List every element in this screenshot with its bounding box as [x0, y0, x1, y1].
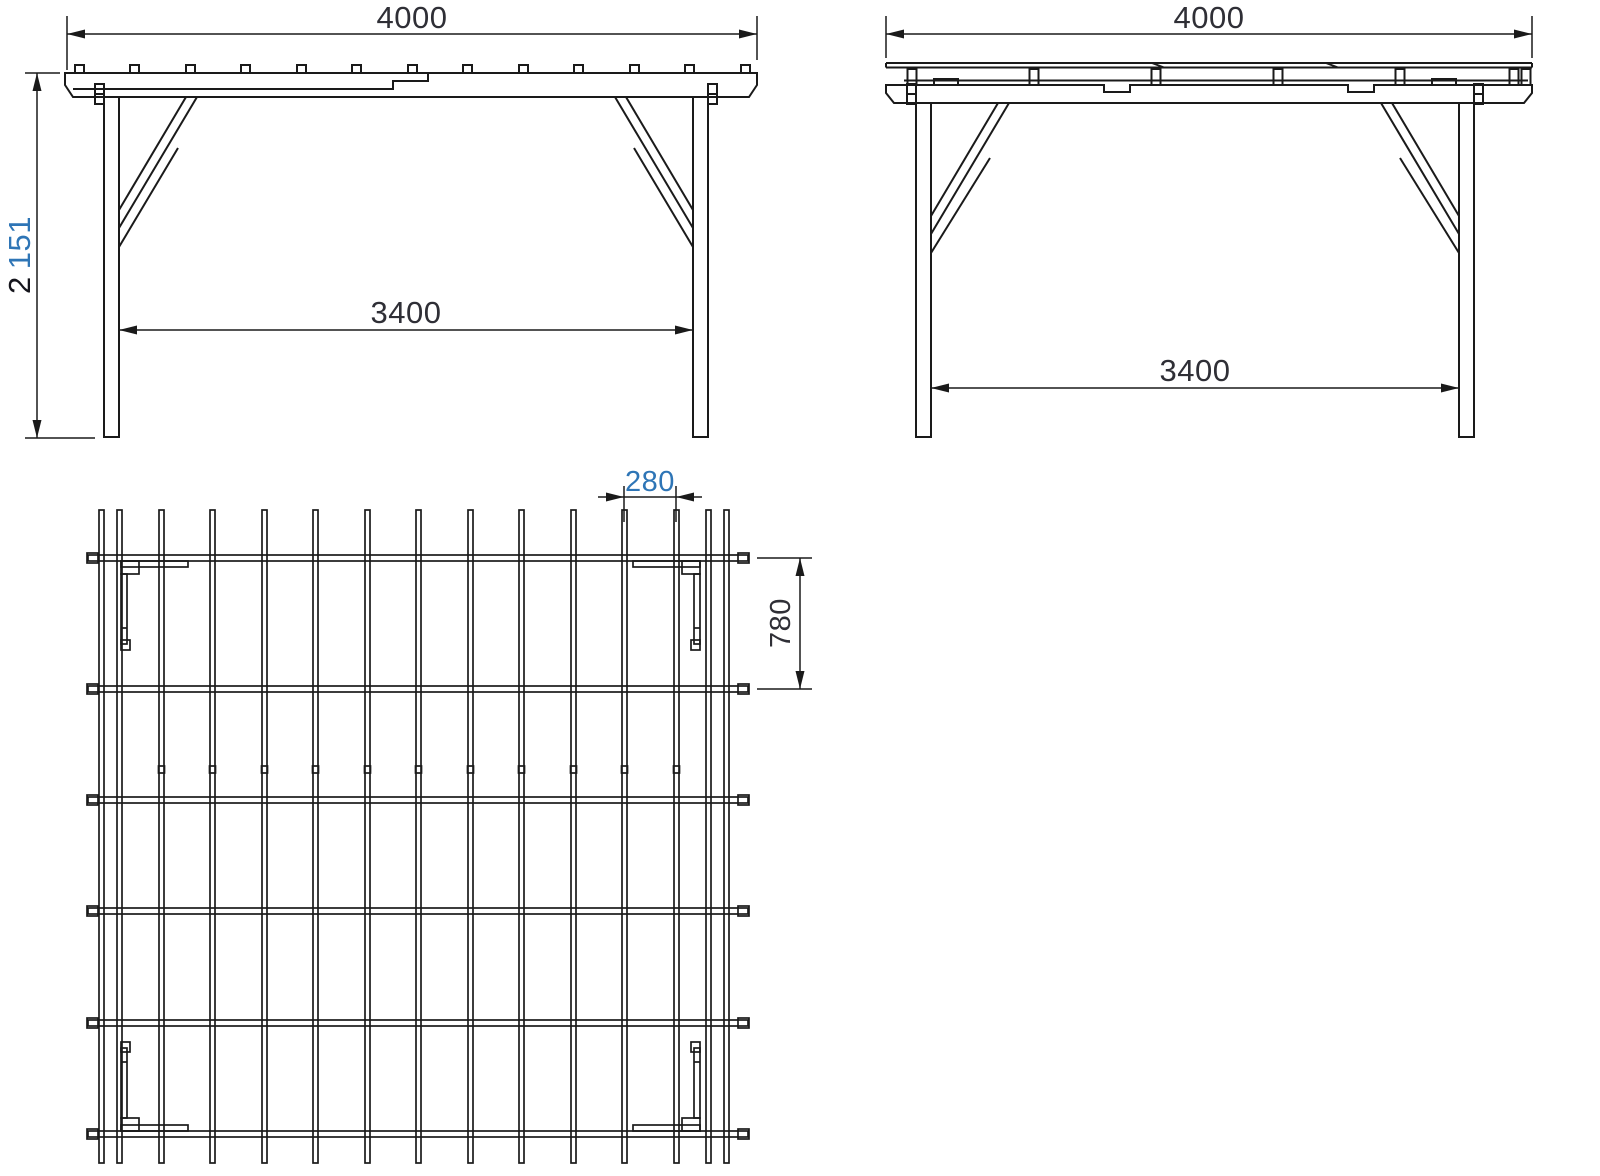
arrowhead: [33, 73, 42, 91]
dimension-front-overall-width: 4000: [67, 0, 757, 70]
dim-label-side-overall-width: 4000: [1174, 0, 1245, 35]
dimension-side-clear-span: 3400: [931, 353, 1459, 393]
dim-label-bay-depth: 780: [765, 598, 797, 648]
beam: [886, 85, 1532, 103]
arrowhead: [886, 30, 904, 39]
corner-post-marker-top-left: [121, 561, 188, 650]
arrowhead: [676, 493, 694, 502]
arrowhead: [1514, 30, 1532, 39]
front-elevation-view: 4000 2151 3400: [2, 0, 757, 438]
dim-label-front-overall-width: 4000: [377, 0, 448, 35]
dim-label-side-clear-span: 3400: [1160, 353, 1231, 388]
arrowhead: [675, 326, 693, 335]
corner-post-marker-bottom-right: [633, 1042, 700, 1131]
corner-braces: [119, 97, 693, 247]
dimension-front-height: 2151: [2, 73, 95, 438]
arrowhead: [931, 384, 949, 393]
dim-label-front-clear-span: 3400: [371, 295, 442, 330]
dim-label-rafter-spacing: 280: [625, 466, 675, 498]
left-post: [104, 97, 119, 437]
right-post: [693, 97, 708, 437]
rafters: [99, 510, 729, 1163]
roof-deck-edge: [886, 63, 1532, 68]
beam: [65, 73, 757, 97]
purlins: [87, 553, 749, 1139]
roof-plan-view: 280 780: [87, 466, 812, 1163]
corner-post-marker-bottom-left: [121, 1042, 188, 1131]
dimension-bay-depth: 780: [757, 558, 812, 689]
side-elevation-view: 4000 3400: [886, 0, 1532, 437]
arrowhead: [67, 30, 85, 39]
dimension-rafter-spacing: 280: [598, 466, 702, 522]
arrowhead: [1441, 384, 1459, 393]
drawing-sheet: 4000 2151 3400: [0, 0, 1600, 1176]
arrowhead: [739, 30, 757, 39]
roof-batten-ends: [75, 65, 750, 73]
corner-braces: [931, 103, 1459, 253]
pergola-technical-drawing: 4000 2151 3400: [0, 0, 1600, 1176]
arrowhead: [796, 671, 805, 689]
arrowhead: [119, 326, 137, 335]
arrowhead: [796, 558, 805, 576]
arrowhead: [33, 420, 42, 438]
left-post: [916, 103, 931, 437]
dimension-side-overall-width: 4000: [886, 0, 1532, 58]
dim-label-front-height: 2151: [2, 216, 37, 294]
arrowhead: [606, 493, 624, 502]
rafter-splice-marks: [159, 766, 680, 773]
right-post: [1459, 103, 1474, 437]
dimension-front-clear-span: 3400: [119, 295, 693, 335]
corner-post-marker-top-right: [633, 561, 700, 650]
